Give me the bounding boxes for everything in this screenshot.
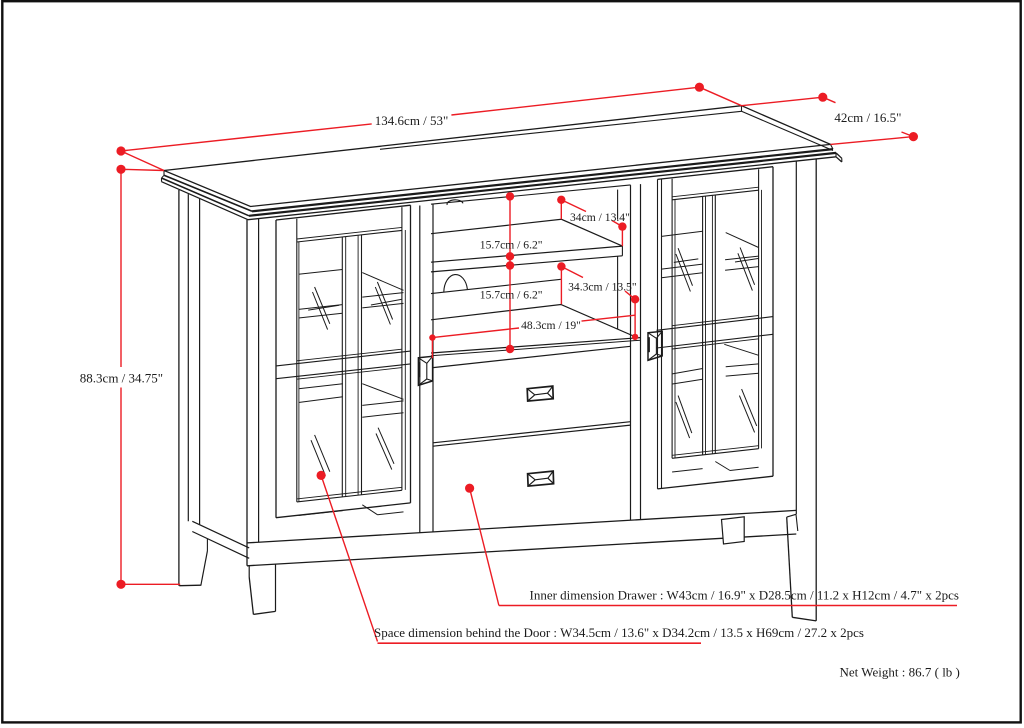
svg-text:134.6cm / 53": 134.6cm / 53" xyxy=(375,113,449,128)
svg-text:42cm / 16.5": 42cm / 16.5" xyxy=(834,110,901,125)
svg-text:Space dimension behind the Doo: Space dimension behind the Door : W34.5c… xyxy=(374,625,864,640)
svg-text:15.7cm / 6.2": 15.7cm / 6.2" xyxy=(480,289,543,302)
svg-text:88.3cm / 34.75": 88.3cm / 34.75" xyxy=(80,371,163,386)
svg-text:15.7cm / 6.2": 15.7cm / 6.2" xyxy=(480,239,543,252)
svg-text:48.3cm / 19": 48.3cm / 19" xyxy=(521,319,581,332)
svg-text:Inner dimension Drawer : W43cm: Inner dimension Drawer : W43cm / 16.9" x… xyxy=(530,587,959,602)
svg-text:34cm / 13.4": 34cm / 13.4" xyxy=(570,211,630,224)
svg-text:Net Weight : 86.7 ( lb ): Net Weight : 86.7 ( lb ) xyxy=(840,665,960,680)
svg-text:34.3cm / 13.5": 34.3cm / 13.5" xyxy=(568,281,637,294)
